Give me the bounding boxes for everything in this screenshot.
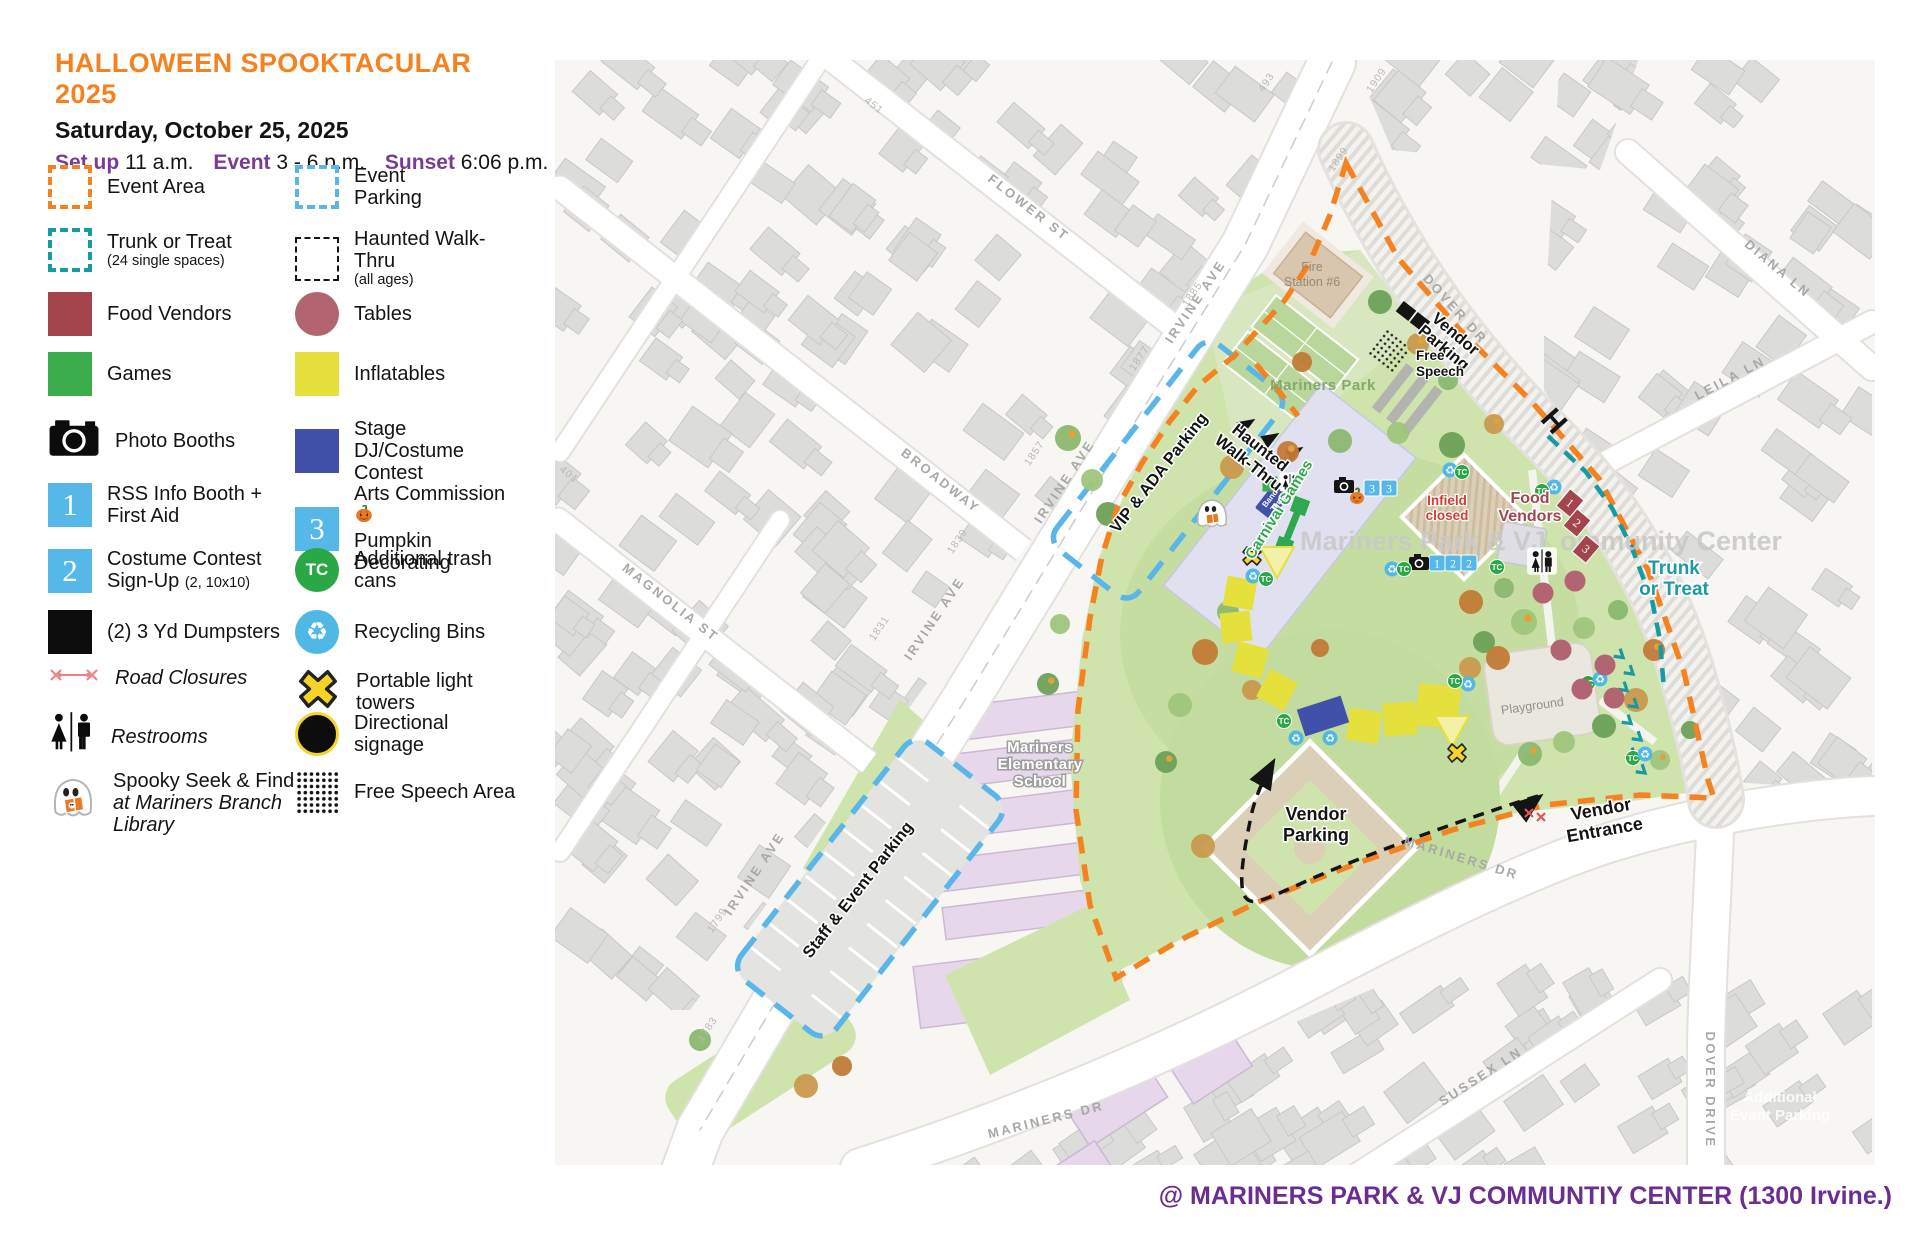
svg-text:♻: ♻ [1463,679,1473,691]
legend-item-stage: StageDJ/Costume Contest [295,418,520,484]
numbered-booth-marker: 3 [1364,480,1380,496]
legend-item-label: Costume ContestSign-Up (2, 10x10) [107,548,262,594]
legend-item-event-parking: EventParking [295,165,422,209]
place-label: Elementary [998,756,1083,773]
spooky-ghost-icon [48,776,98,831]
legend-item-label: Additional trashcans [354,548,492,592]
road-closures-icon [48,666,100,684]
legend-item-label: (2) 3 Yd Dumpsters [107,621,280,643]
overlay-label: AdditionalEvent Parking [1730,1089,1830,1124]
table-marker [1533,583,1554,604]
overlay-label: VendorParking [1283,804,1349,845]
table-marker [1572,679,1593,700]
table-marker [1595,655,1616,676]
photo-booths-icon [48,418,100,463]
legend-item-tables: Tables [295,292,412,336]
svg-text:1: 1 [1434,557,1440,571]
legend-item-label: Recycling Bins [354,621,485,643]
legend-item-info-booth: 1RSS Info Booth +First Aid [48,483,262,527]
trash-cans-icon: TC [295,548,339,592]
svg-text:3: 3 [1386,482,1392,496]
event-parking-swatch [295,165,339,209]
table-marker [1551,640,1572,661]
recycling-icon: ♻ [1638,747,1653,762]
legend-item-dumpsters: (2) 3 Yd Dumpsters [48,610,280,654]
overlay-label: Infieldclosed [1426,493,1469,523]
pumpkin-icon [354,505,374,525]
legend-item-label: Trunk or Treat(24 single spaces) [107,231,232,270]
venue-footer: @ MARINERS PARK & VJ COMMUNTIY CENTER (1… [1159,1182,1892,1211]
legend-item-road-closures: Road Closures [48,666,247,689]
svg-text:TC: TC [1628,754,1639,763]
place-label: Fire [1301,260,1323,274]
svg-text:♻: ♻ [1325,733,1335,745]
stage-swatch [295,429,339,473]
dumpsters-swatch [48,610,92,654]
trash-can-icon: TC [1448,674,1463,689]
place-label: Mariners Park & VJ [1300,526,1546,556]
restrooms-icon [48,712,96,761]
svg-text:♻: ♻ [1595,674,1605,686]
place-label: Mariners [1007,739,1073,756]
numbered-booth-marker: 3 [1381,480,1397,496]
legend-item-restrooms: Restrooms [48,712,208,761]
svg-text:2: 2 [1466,557,1472,571]
light-towers-icon [295,666,341,717]
tables-swatch [295,292,339,336]
legend-item-label: Portable light towers [356,670,520,714]
overlay-label: Trunkor Treat [1639,558,1709,600]
light-tower-icon [295,666,341,712]
legend-item-costume-signup: 2Costume ContestSign-Up (2, 10x10) [48,548,262,594]
street-label: DOVER DRIVE [1703,1031,1718,1148]
legend-item-free-speech: Free Speech Area [295,770,515,814]
place-label: Mariners Park [1270,377,1376,394]
svg-text:TC: TC [1261,575,1272,584]
legend-item-label: Games [107,363,171,385]
numbered-booth-marker: 2 [1445,555,1461,571]
svg-text:♻: ♻ [1291,733,1301,745]
svg-text:♻: ♻ [1445,465,1455,477]
info-booth-marker: 1 [48,483,92,527]
trash-can-icon: TC [1397,562,1412,577]
food-vendors-swatch [48,292,92,336]
games-swatch [48,352,92,396]
svg-text:2: 2 [1450,557,1456,571]
legend-item-trunk-or-treat: Trunk or Treat(24 single spaces) [48,228,232,272]
restrooms-icon [1527,547,1557,575]
legend-item-label: StageDJ/Costume Contest [354,418,520,484]
legend-item-label: EventParking [354,165,422,209]
road-closures-icon [48,666,100,689]
inflatables-swatch [295,352,339,396]
legend-item-light-towers: Portable light towers [295,666,520,717]
event-map: FLOWER STBROADWAYMAGNOLIA STIRVINE AVEIR… [555,60,1875,1165]
event-area-swatch [48,165,92,209]
place-label: School [1014,773,1066,790]
place-label: Station #6 [1284,275,1340,289]
svg-text:TC: TC [1279,717,1290,726]
trash-can-icon: TC [1259,572,1274,587]
legend-item-label: Event Area [107,176,205,198]
legend-item-directional-signage: Directionalsignage [295,712,448,756]
haunted-walkthru-swatch [295,237,339,281]
legend-item-label: Road Closures [115,667,247,689]
svg-text:TC: TC [1399,565,1410,574]
directional-signage-icon [295,712,339,756]
recycling-icon: ♻ [1323,731,1338,746]
trash-can-icon: TC [1277,714,1292,729]
legend-item-label: Spooky Seek & Findat Mariners BranchLibr… [113,770,294,836]
svg-text:♻: ♻ [1387,564,1397,576]
table-marker [1604,688,1625,709]
svg-text:♻: ♻ [1248,571,1258,583]
legend-item-inflatables: Inflatables [295,352,445,396]
legend-item-spooky-ghost: Spooky Seek & Findat Mariners BranchLibr… [48,770,294,836]
numbered-booth-marker: 2 [1461,555,1477,571]
legend-item-label: Restrooms [111,726,208,748]
ghost-icon [48,776,98,826]
legend-item-label: Haunted Walk-Thru(all ages) [354,228,520,289]
recycling-icon: ♻ [1289,731,1304,746]
svg-text:♻: ♻ [1549,482,1559,494]
legend-item-trash-cans: TCAdditional trashcans [295,548,492,592]
free-speech-swatch [295,770,339,814]
svg-text:TC: TC [1457,468,1468,477]
legend-item-recycling: ♻Recycling Bins [295,610,485,654]
recycling-icon: ♻ [295,610,339,654]
legend-item-photo-booths: Photo Booths [48,418,235,463]
legend-item-haunted-walkthru: Haunted Walk-Thru(all ages) [295,228,520,289]
legend-item-label: Inflatables [354,363,445,385]
legend-item-label: Food Vendors [107,303,232,325]
trash-can-icon: TC [1490,560,1505,575]
trunk-or-treat-swatch [48,228,92,272]
event-flyer-map: HALLOWEEN SPOOKTACULAR 2025 Saturday, Oc… [0,0,1920,1242]
legend-item-games: Games [48,352,171,396]
recycling-icon: ♻ [1461,677,1476,692]
svg-text:TC: TC [1492,563,1503,572]
trash-can-icon: TC [1455,465,1470,480]
table-marker [1565,571,1586,592]
legend-item-label: Directionalsignage [354,712,448,756]
recycling-icon: ♻ [1246,569,1261,584]
ghost-icon [1198,500,1226,527]
restrooms-icon [48,712,96,756]
legend-item-label: Free Speech Area [354,781,515,803]
svg-text:TC: TC [1450,677,1461,686]
legend-item-food-vendors: Food Vendors [48,292,232,336]
svg-text:3: 3 [1369,482,1375,496]
legend-item-label: Tables [354,303,412,325]
legend: Event AreaTrunk or Treat(24 single space… [0,0,520,900]
arts-commission-marker: 3 [295,507,339,551]
svg-text:♻: ♻ [1640,749,1650,761]
legend-item-label: Photo Booths [115,430,235,452]
legend-item-event-area: Event Area [48,165,205,209]
legend-item-label: RSS Info Booth +First Aid [107,483,262,527]
numbered-booth-marker: 1 [1429,555,1445,571]
camera-icon [48,418,100,458]
costume-signup-marker: 2 [48,549,92,593]
